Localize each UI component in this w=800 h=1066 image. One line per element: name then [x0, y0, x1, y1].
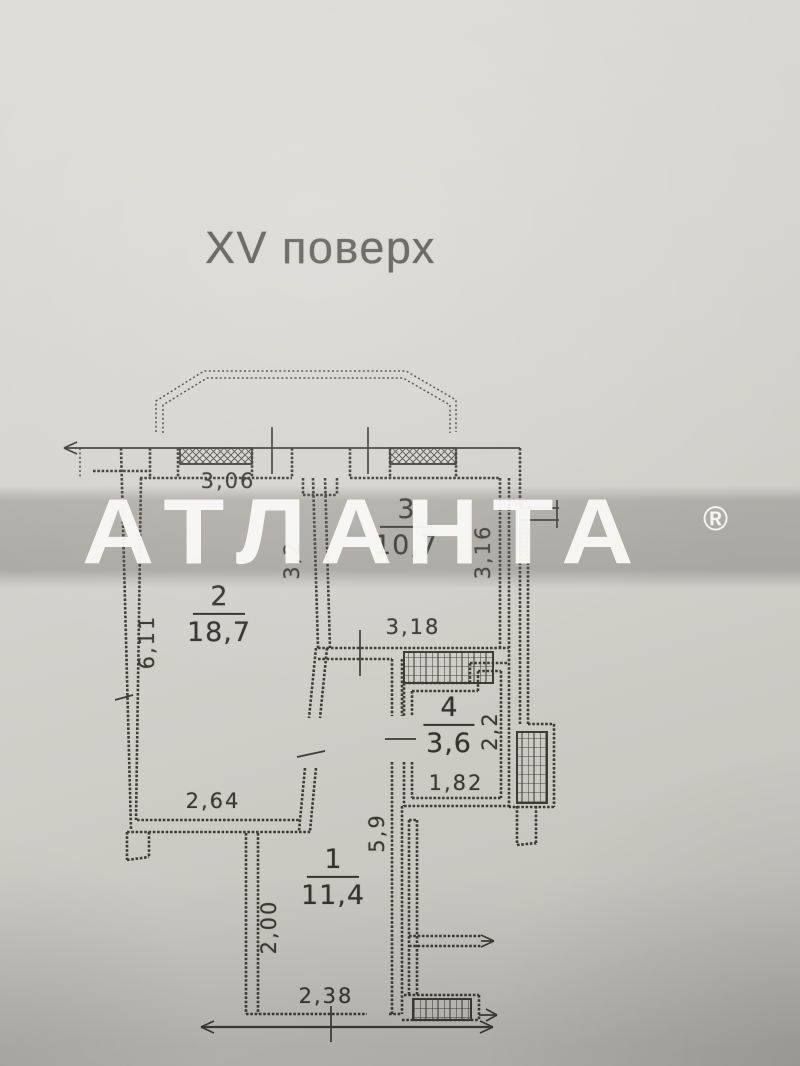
- room-2-label: 2 18,7: [187, 582, 251, 648]
- dim-2-38: 2,38: [299, 984, 354, 1008]
- room-number: 1: [307, 845, 358, 878]
- dim-5-9: 5,9: [365, 813, 389, 852]
- room-1-label: 1 11,4: [301, 845, 365, 911]
- watermark-brand: АТЛАНТА: [82, 487, 647, 576]
- room-area: 18,7: [187, 617, 251, 648]
- watermark-band: АТЛАНТА ®: [0, 486, 800, 588]
- room-4-label: 4 3,6: [423, 693, 474, 759]
- room-area: 3,6: [423, 728, 474, 759]
- dim-2-64: 2,64: [186, 789, 241, 813]
- dim-1-82: 1,82: [429, 771, 484, 795]
- scanned-floorplan-photo: XV поверх: [0, 0, 800, 1066]
- dim-2-00: 2,00: [257, 900, 281, 955]
- room-area: 11,4: [301, 880, 365, 911]
- room-number: 4: [423, 693, 474, 726]
- dim-6-11: 6,11: [135, 615, 159, 670]
- dim-2-2: 2,2: [478, 711, 502, 750]
- registered-trademark-icon: ®: [703, 500, 728, 539]
- dim-3-18: 3,18: [386, 615, 441, 639]
